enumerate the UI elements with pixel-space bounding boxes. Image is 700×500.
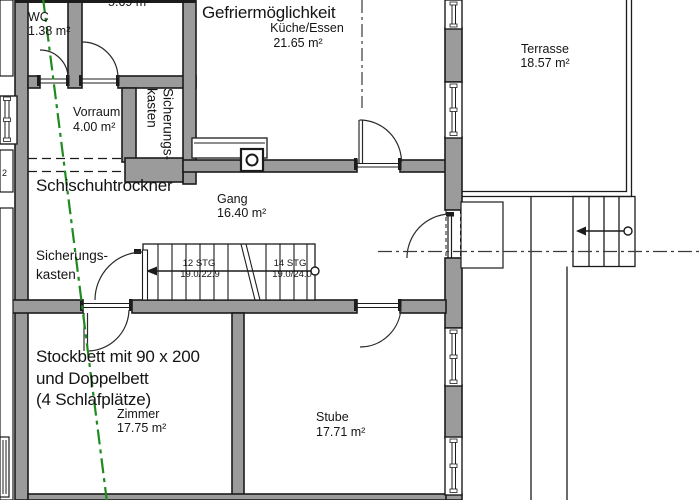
ski-boot-dryer-label: Schischuhtrockner [36, 176, 172, 195]
wall-right-1 [445, 28, 462, 82]
fuse-box-label-line1: Sicherungs- [36, 248, 108, 263]
stube-door-arc [360, 307, 401, 347]
kitchen-banner: Gefriermöglichkeit [202, 3, 335, 22]
wc-name: WC [28, 10, 49, 24]
zimmer-note-1: Stockbett mit 90 x 200 [36, 347, 200, 366]
wc-area: 1.38 m² [28, 24, 70, 38]
left-edge-partial-rooms [0, 0, 13, 500]
wall-right-2 [445, 137, 462, 210]
wall-zimmer-stube-divider [232, 313, 244, 500]
floor-plan: WC 1.38 m² 5.69 m² Gefriermöglichkeit Kü… [0, 0, 700, 500]
vorraum-area: 4.00 m² [73, 120, 115, 134]
chimney-symbol [241, 149, 263, 171]
hallway-area: 16.40 m² [217, 206, 266, 220]
entrance-door [407, 210, 461, 258]
window-symbol [445, 328, 462, 386]
zimmer-note-2: und Doppelbett [36, 369, 149, 388]
window-symbol [445, 0, 462, 29]
entrance-landing [461, 202, 503, 268]
wall-right-4 [445, 385, 462, 438]
stube-name: Stube [316, 410, 349, 424]
kitchen-name: Küche/Essen [270, 21, 344, 35]
terrace-area: 18.57 m² [520, 56, 569, 70]
stair-run-right-dim: 19.0/24.0 [272, 270, 312, 281]
zimmer-name: Zimmer [117, 407, 159, 421]
wall-gang-top-right [400, 160, 447, 172]
fuse-box-label-vertical: Sicherungs- kasten [144, 88, 175, 160]
dashed-niche-lines [28, 159, 125, 172]
small-room-door-arc [82, 42, 118, 78]
wall-gang-bottom-right [400, 300, 446, 313]
window-symbol [445, 82, 462, 138]
hallway-name: Gang [217, 192, 248, 206]
wall-bottom-cut [28, 494, 446, 500]
small-room-area: 5.69 m² [108, 0, 150, 9]
wall-outer-left [15, 0, 28, 500]
edge-label-fragment: 2 [2, 168, 7, 178]
kitchen-area: 21.65 m² [273, 36, 322, 50]
wall-gang-bottom-mid [132, 300, 357, 313]
window-left-edge [0, 96, 17, 144]
stube-area: 17.71 m² [316, 425, 365, 439]
terrace-name: Terrasse [521, 42, 569, 56]
window-symbol [445, 437, 462, 495]
wall-vorraum-right [122, 88, 136, 162]
vorraum-name: Vorraum [73, 105, 120, 119]
zimmer-door-arc [87, 310, 129, 351]
fuse-box-label-line2: kasten [36, 267, 76, 282]
wall-right-3 [445, 258, 462, 328]
partial-room-top [0, 0, 13, 76]
wall-gang-top-left [183, 160, 357, 172]
wc-door-arc [40, 50, 68, 78]
zimmer-area: 17.75 m² [117, 421, 166, 435]
stair-door-leaf [143, 250, 148, 300]
wall-wc-right [68, 0, 82, 88]
kitchen-door-arc [360, 120, 402, 162]
stair-run-left-dim: 19.0/22.9 [180, 270, 220, 281]
window-left-bottom [0, 437, 9, 497]
